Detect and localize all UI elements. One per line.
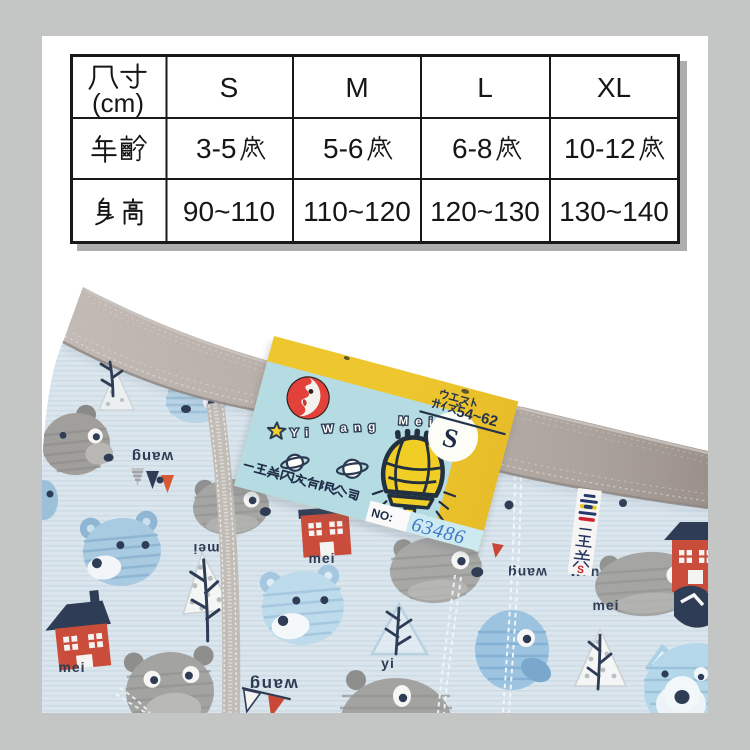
svg-text:(cm): (cm) xyxy=(92,88,144,118)
svg-text:mei: mei xyxy=(308,550,335,566)
svg-text:XL: XL xyxy=(597,72,631,103)
svg-text:wang: wang xyxy=(507,565,548,581)
svg-text:mei: mei xyxy=(592,597,619,613)
svg-text:6-8: 6-8 xyxy=(452,133,492,164)
svg-text:wang: wang xyxy=(131,448,174,465)
svg-text:M e i: M e i xyxy=(398,415,434,429)
svg-text:yi: yi xyxy=(381,655,395,671)
svg-text:mei: mei xyxy=(678,521,705,537)
svg-text:10-12: 10-12 xyxy=(564,133,636,164)
svg-text:mei: mei xyxy=(192,541,219,557)
svg-text:130~140: 130~140 xyxy=(559,196,669,227)
svg-text:Y i: Y i xyxy=(290,427,310,439)
svg-text:110~120: 110~120 xyxy=(303,196,411,227)
svg-text:mei: mei xyxy=(58,659,85,675)
svg-text:120~130: 120~130 xyxy=(430,196,540,227)
svg-text:5-6: 5-6 xyxy=(323,133,363,164)
svg-text:M: M xyxy=(345,72,368,103)
svg-text:90~110: 90~110 xyxy=(183,196,275,227)
svg-text:L: L xyxy=(477,72,493,103)
svg-text:S: S xyxy=(220,72,239,103)
svg-text:3-5: 3-5 xyxy=(196,133,236,164)
svg-text:S: S xyxy=(576,564,584,577)
